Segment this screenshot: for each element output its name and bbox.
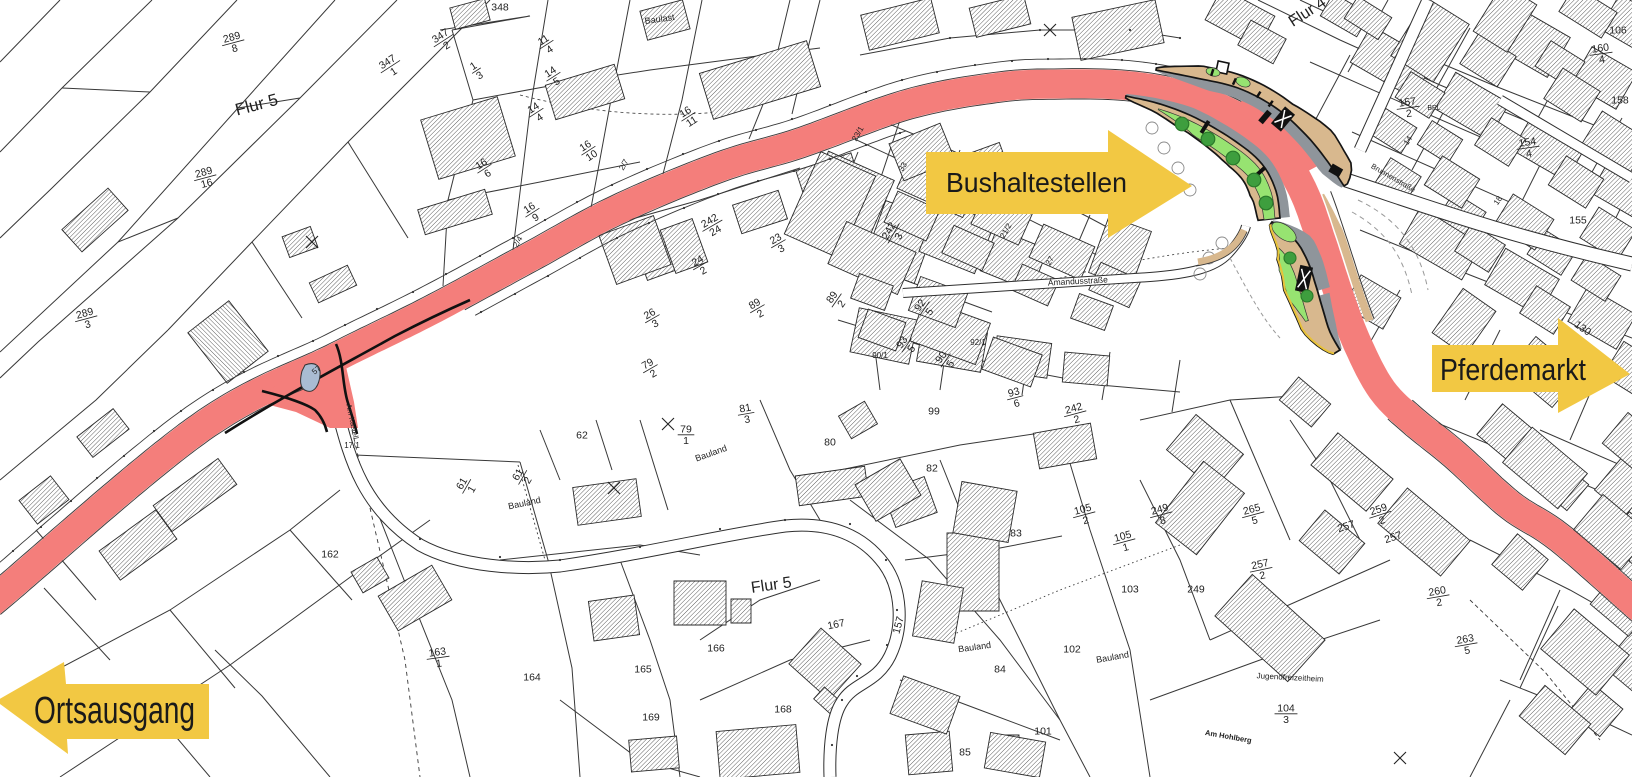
svg-text:166: 166: [707, 643, 725, 655]
svg-text:62: 62: [576, 430, 588, 442]
svg-text:83: 83: [1010, 528, 1022, 540]
svg-text:79: 79: [680, 424, 692, 436]
svg-text:249: 249: [1187, 584, 1205, 596]
svg-text:164: 164: [523, 672, 541, 684]
svg-text:106: 106: [1609, 25, 1627, 37]
svg-text:82: 82: [926, 463, 938, 475]
svg-text:17/1: 17/1: [344, 441, 360, 450]
svg-text:162: 162: [321, 549, 339, 561]
svg-text:Bushaltestellen: Bushaltestellen: [946, 167, 1127, 198]
svg-text:103: 103: [1121, 584, 1139, 596]
svg-text:99: 99: [928, 406, 940, 418]
svg-text:1: 1: [683, 435, 689, 447]
svg-text:169: 169: [642, 712, 660, 724]
svg-text:155: 155: [1569, 215, 1587, 227]
svg-text:85: 85: [959, 747, 971, 759]
svg-text:102: 102: [1063, 644, 1081, 656]
svg-text:84: 84: [994, 664, 1006, 676]
svg-text:158: 158: [1611, 95, 1629, 107]
svg-text:168: 168: [774, 704, 792, 716]
svg-text:165: 165: [634, 664, 652, 676]
svg-text:101: 101: [1034, 726, 1052, 738]
svg-text:Ortsausgang: Ortsausgang: [34, 690, 195, 732]
svg-text:348: 348: [491, 2, 509, 14]
svg-text:Pferdemarkt: Pferdemarkt: [1440, 352, 1586, 387]
svg-text:92/1: 92/1: [970, 338, 986, 347]
svg-text:104: 104: [1277, 703, 1295, 715]
svg-text:3: 3: [1283, 714, 1289, 726]
svg-text:BPL: BPL: [1427, 105, 1440, 112]
svg-text:80: 80: [824, 437, 836, 449]
svg-text:90/1: 90/1: [872, 351, 888, 360]
